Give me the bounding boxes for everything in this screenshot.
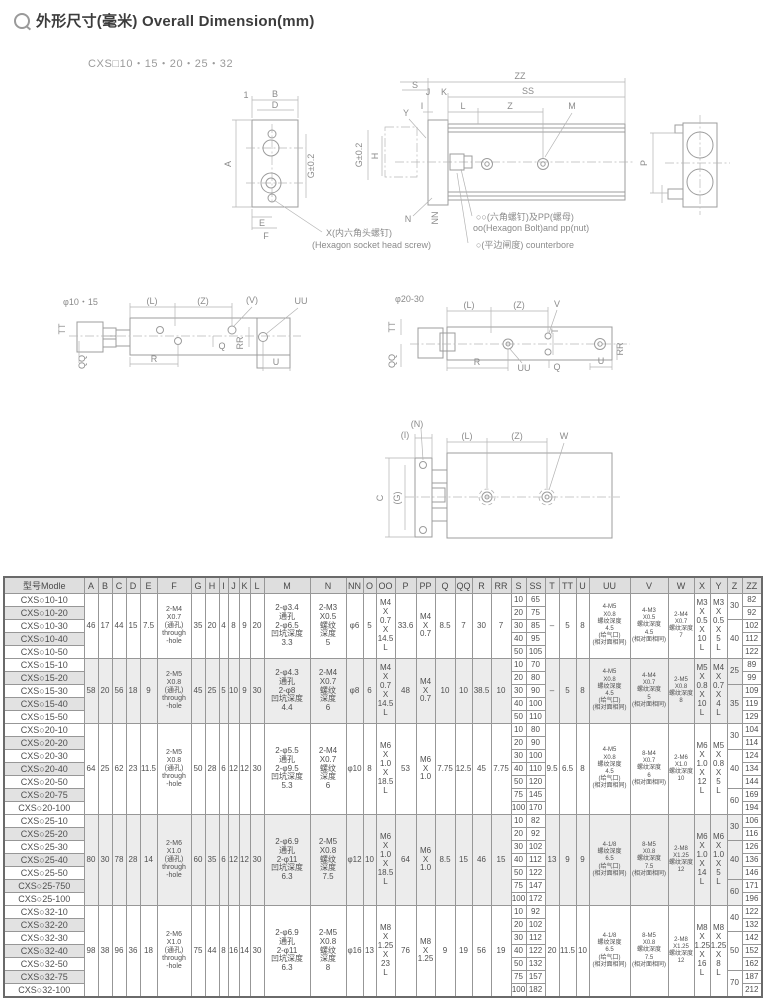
callout-bolt-nut-en: oo(Hexagon Bolt)and pp(nut) bbox=[473, 223, 589, 233]
table-cell: 2-φ6.9 通孔 2-φ11 凹坑深度 6.3 bbox=[264, 906, 310, 998]
table-cell: M8 X 1.25 X 23 L bbox=[376, 906, 395, 998]
model-cell: CXS○10-40 bbox=[4, 633, 84, 646]
table-cell: 112 bbox=[526, 854, 545, 867]
table-cell: 25 bbox=[205, 659, 219, 724]
table-cell: 92 bbox=[526, 828, 545, 841]
table-cell: 64 bbox=[84, 724, 98, 815]
table-cell: 90 bbox=[526, 737, 545, 750]
table-cell: M3 X 0.5 X 5 L bbox=[710, 594, 727, 659]
table-cell: 142 bbox=[742, 932, 762, 945]
model-cell: CXS○20-100 bbox=[4, 802, 84, 815]
table-cell: 40 bbox=[727, 906, 742, 932]
dimension-table: 型号ModleABCDEFGHIJKLMNNNOOOPPPQQQRRRSSSTT… bbox=[3, 576, 763, 998]
model-cell: CXS○20-50 bbox=[4, 776, 84, 789]
table-cell: 30 bbox=[727, 724, 742, 750]
column-header: NN bbox=[346, 577, 363, 594]
table-cell: M8 X 1.25 X 8 L bbox=[710, 906, 727, 998]
table-cell: 2-φ3.4 通孔 2-φ6.5 凹坑深度 3.3 bbox=[264, 594, 310, 659]
table-cell: 28 bbox=[126, 815, 140, 906]
table-cell: 12.5 bbox=[455, 724, 472, 815]
drawing-bottom-view: C (G) (I) (N) (L) (Z) W bbox=[365, 418, 625, 563]
table-cell: 2-M5 X0.8 (通孔) through -hole bbox=[157, 724, 191, 815]
table-cell: 40 bbox=[727, 841, 742, 880]
table-cell: 8 bbox=[576, 724, 589, 815]
table-cell: 30 bbox=[250, 815, 264, 906]
table-cell: 114 bbox=[742, 737, 762, 750]
dim-label-P: P bbox=[639, 160, 649, 166]
table-cell: 44 bbox=[112, 594, 126, 659]
table-cell: 147 bbox=[526, 880, 545, 893]
table-cell: 122 bbox=[742, 646, 762, 659]
model-cell: CXS○15-40 bbox=[4, 698, 84, 711]
table-cell: 99 bbox=[742, 672, 762, 685]
table-cell: 109 bbox=[742, 685, 762, 698]
table-cell: 8 bbox=[363, 724, 376, 815]
table-cell: 8-M4 X0.7 螺纹深度 6 (相对面相同) bbox=[630, 724, 668, 815]
dim-label-K: K bbox=[441, 87, 447, 97]
table-cell: 60 bbox=[191, 815, 205, 906]
table-cell: 10 bbox=[511, 815, 526, 828]
table-cell: 16 bbox=[228, 906, 239, 998]
table-cell: 7.75 bbox=[435, 724, 455, 815]
table-cell: 171 bbox=[742, 880, 762, 893]
table-cell: 20 bbox=[205, 594, 219, 659]
model-cell: CXS○32-50 bbox=[4, 958, 84, 971]
column-header: PP bbox=[416, 577, 435, 594]
dim-label-UU: UU bbox=[295, 296, 308, 306]
table-cell: 30 bbox=[472, 594, 491, 659]
table-cell: M3 X 0.5 X 10 L bbox=[694, 594, 710, 659]
table-cell: 78 bbox=[112, 815, 126, 906]
table-cell: 6 bbox=[363, 659, 376, 724]
model-cell: CXS○25-40 bbox=[4, 854, 84, 867]
table-cell: 4-1/8 螺纹深度 6.5 (给气口) (相对面相同) bbox=[589, 906, 630, 998]
column-header: N bbox=[310, 577, 346, 594]
table-cell: 2-M4 X0.7 螺纹 深度 6 bbox=[310, 659, 346, 724]
dim-label-RR: RR bbox=[615, 342, 625, 355]
table-cell: 38.5 bbox=[472, 659, 491, 724]
dim-label-QQ: QQ bbox=[77, 355, 87, 369]
table-cell: 50 bbox=[511, 958, 526, 971]
dim-label-L: (L) bbox=[462, 431, 473, 441]
table-cell: 196 bbox=[742, 893, 762, 906]
table-cell: 92 bbox=[742, 607, 762, 620]
view-title: φ20-30 bbox=[395, 294, 424, 304]
table-cell: 2-M6 X1.0 (通孔) through -hole bbox=[157, 906, 191, 998]
table-cell: 50 bbox=[727, 932, 742, 971]
table-cell: 75 bbox=[511, 789, 526, 802]
table-cell: 7.75 bbox=[491, 724, 511, 815]
table-cell: 132 bbox=[526, 958, 545, 971]
table-cell: 75 bbox=[511, 971, 526, 984]
table-cell: 12 bbox=[228, 815, 239, 906]
table-cell: 23 bbox=[126, 724, 140, 815]
table-cell: 30 bbox=[511, 841, 526, 854]
table-cell: 9 bbox=[140, 659, 157, 724]
table-cell: 90 bbox=[526, 685, 545, 698]
column-header: S bbox=[511, 577, 526, 594]
table-cell: 40 bbox=[727, 620, 742, 659]
column-header: R bbox=[472, 577, 491, 594]
table-cell: 4-M4 X0.7 螺纹深度 5 (相对面相同) bbox=[630, 659, 668, 724]
table-cell: 110 bbox=[526, 763, 545, 776]
table-cell: 40 bbox=[511, 854, 526, 867]
column-header: B bbox=[98, 577, 112, 594]
view-title: φ10・15 bbox=[63, 297, 98, 307]
table-cell: 30 bbox=[727, 594, 742, 620]
model-cell: CXS○25-50 bbox=[4, 867, 84, 880]
callout-bolt-nut-cn: ○○(六角螺钉)及PP(螺母) bbox=[476, 211, 574, 222]
table-cell: – bbox=[545, 659, 559, 724]
table-cell: 144 bbox=[742, 776, 762, 789]
table-cell: 2-φ5.5 通孔 2-φ9.5 凹坑深度 5.3 bbox=[264, 724, 310, 815]
table-cell: 162 bbox=[742, 958, 762, 971]
dim-label-V: V bbox=[554, 299, 560, 309]
dim-label-R: R bbox=[474, 357, 481, 367]
table-cell: 20 bbox=[98, 659, 112, 724]
table-cell: 9 bbox=[239, 594, 250, 659]
table-cell: 5 bbox=[219, 659, 228, 724]
table-cell: M5 X 0.8 X 10 L bbox=[694, 659, 710, 724]
model-cell: CXS○20-40 bbox=[4, 763, 84, 776]
dim-label-N: (N) bbox=[411, 419, 424, 429]
column-header: O bbox=[363, 577, 376, 594]
model-cell: CXS○15-30 bbox=[4, 685, 84, 698]
table-cell: 2-M8 X1.25 螺纹深度 12 bbox=[668, 906, 694, 998]
table-cell: 4-M5 X0.8 螺纹深度 4.5 (给气口) (相对面相同) bbox=[589, 724, 630, 815]
table-cell: 40 bbox=[511, 763, 526, 776]
table-cell: 2-M5 X0.8 螺纹 深度 7.5 bbox=[310, 815, 346, 906]
model-cell: CXS○32-10 bbox=[4, 906, 84, 919]
drawing-phi20-30: φ20-30 (L) (Z) V T TT QQ R UU Q U RR bbox=[385, 283, 720, 398]
column-header: OO bbox=[376, 577, 395, 594]
column-header: X bbox=[694, 577, 710, 594]
table-cell: 56 bbox=[472, 906, 491, 998]
table-cell: 53 bbox=[395, 724, 416, 815]
table-cell: 102 bbox=[742, 620, 762, 633]
table-cell: 96 bbox=[112, 906, 126, 998]
dim-label-RR: RR bbox=[235, 336, 245, 349]
model-cell: CXS○10-30 bbox=[4, 620, 84, 633]
table-cell: 30 bbox=[250, 659, 264, 724]
callout-hex-socket-en: (Hexagon socket head screw) bbox=[312, 240, 431, 250]
table-cell: 50 bbox=[511, 711, 526, 724]
callout-counterbore: ○(平边闸度) counterbore bbox=[476, 239, 574, 250]
dim-label-L: (L) bbox=[464, 300, 475, 310]
table-cell: 75 bbox=[511, 880, 526, 893]
dim-label-UU: UU bbox=[518, 363, 531, 373]
table-cell: 10 bbox=[511, 906, 526, 919]
dim-label-Y: Y bbox=[403, 108, 409, 118]
dim-label-Q: Q bbox=[553, 362, 560, 372]
table-cell: 65 bbox=[526, 594, 545, 607]
table-cell: 46 bbox=[472, 815, 491, 906]
table-cell: 38 bbox=[98, 906, 112, 998]
column-header: QQ bbox=[455, 577, 472, 594]
table-cell: 36 bbox=[126, 906, 140, 998]
model-cell: CXS○10-20 bbox=[4, 607, 84, 620]
table-cell: M6 X 1.0 X 18.5 L bbox=[376, 815, 395, 906]
table-cell: 50 bbox=[191, 724, 205, 815]
table-cell: 14 bbox=[140, 815, 157, 906]
dim-label-1: 1 bbox=[243, 90, 248, 100]
table-cell: 100 bbox=[511, 984, 526, 998]
table-cell: 82 bbox=[526, 815, 545, 828]
table-cell: 12 bbox=[228, 724, 239, 815]
table-cell: M6 X 1.0 bbox=[416, 724, 435, 815]
table-cell: 70 bbox=[526, 659, 545, 672]
dim-label-TT: TT bbox=[57, 323, 67, 334]
model-cell: CXS○15-10 bbox=[4, 659, 84, 672]
table-cell: 172 bbox=[526, 893, 545, 906]
model-cell: CXS○32-30 bbox=[4, 932, 84, 945]
dim-label-S: S bbox=[412, 80, 418, 90]
dim-label-U: U bbox=[598, 356, 605, 366]
table-cell: 187 bbox=[742, 971, 762, 984]
table-cell: 64 bbox=[395, 815, 416, 906]
table-cell: 106 bbox=[742, 815, 762, 828]
table-cell: 124 bbox=[742, 750, 762, 763]
column-header: W bbox=[668, 577, 694, 594]
dim-label-G: G±0.2 bbox=[306, 154, 316, 178]
column-header: UU bbox=[589, 577, 630, 594]
table-cell: 30 bbox=[511, 932, 526, 945]
dim-label-C: C bbox=[375, 494, 385, 501]
table-cell: φ10 bbox=[346, 724, 363, 815]
table-cell: 8 bbox=[219, 906, 228, 998]
table-cell: 10 bbox=[435, 659, 455, 724]
table-cell: 4-M5 X0.8 螺纹深度 4.5 (给气口) (相对面相同) bbox=[589, 594, 630, 659]
table-cell: 10 bbox=[363, 815, 376, 906]
table-cell: 129 bbox=[742, 711, 762, 724]
column-header: F bbox=[157, 577, 191, 594]
table-cell: 8-M5 X0.8 螺纹深度 7.5 (相对面相同) bbox=[630, 815, 668, 906]
table-cell: M8 X 1.25 bbox=[416, 906, 435, 998]
dim-label-QQ: QQ bbox=[387, 354, 397, 368]
table-cell: 9 bbox=[559, 815, 576, 906]
table-cell: M5 X 0.8 X 5 L bbox=[710, 724, 727, 815]
table-cell: 89 bbox=[742, 659, 762, 672]
table-cell: 2-M5 X0.8 螺纹 深度 8 bbox=[310, 906, 346, 998]
dim-label-A: A bbox=[223, 161, 233, 167]
table-cell: 116 bbox=[742, 828, 762, 841]
dim-label-B: B bbox=[272, 89, 278, 99]
model-cell: CXS○25-10 bbox=[4, 815, 84, 828]
dim-label-H: H bbox=[370, 153, 380, 160]
table-cell: 120 bbox=[526, 776, 545, 789]
table-cell: 40 bbox=[511, 698, 526, 711]
table-cell: M6 X 1.0 bbox=[416, 815, 435, 906]
table-cell: 136 bbox=[742, 854, 762, 867]
column-header: Z bbox=[727, 577, 742, 594]
table-cell: 19 bbox=[491, 906, 511, 998]
dim-label-Z: Z bbox=[507, 101, 513, 111]
column-header: M bbox=[264, 577, 310, 594]
table-cell: 70 bbox=[727, 971, 742, 998]
model-cell: CXS○10-50 bbox=[4, 646, 84, 659]
drawing-phi10-15: φ10・15 (L) (Z) (V) UU TT QQ Q RR R U bbox=[55, 283, 395, 398]
table-cell: 4 bbox=[219, 594, 228, 659]
table-cell: 80 bbox=[526, 672, 545, 685]
table-cell: 17 bbox=[98, 594, 112, 659]
table-cell: 20 bbox=[511, 919, 526, 932]
dim-label-M: M bbox=[568, 101, 576, 111]
table-cell: 212 bbox=[742, 984, 762, 998]
column-header: C bbox=[112, 577, 126, 594]
dim-label-N: N bbox=[405, 214, 412, 224]
table-cell: 102 bbox=[526, 841, 545, 854]
table-cell: M4 X 0.7 bbox=[416, 594, 435, 659]
table-cell: 2-M6 X1.0 螺纹深度 10 bbox=[668, 724, 694, 815]
table-cell: 25 bbox=[98, 724, 112, 815]
column-header: ZZ bbox=[742, 577, 762, 594]
callout-hex-socket-cn: X(内六角头螺钉) bbox=[326, 227, 392, 238]
table-cell: 9 bbox=[576, 815, 589, 906]
table-cell: 92 bbox=[526, 906, 545, 919]
table-cell: 6 bbox=[219, 815, 228, 906]
table-cell: φ8 bbox=[346, 659, 363, 724]
model-cell: CXS○25-750 bbox=[4, 880, 84, 893]
table-cell: 14 bbox=[239, 906, 250, 998]
table-cell: 12 bbox=[239, 724, 250, 815]
table-cell: 100 bbox=[526, 698, 545, 711]
dim-label-Z: (Z) bbox=[511, 431, 523, 441]
table-cell: 2-M4 X0.7 (通孔) through -hole bbox=[157, 594, 191, 659]
table-cell: 58 bbox=[84, 659, 98, 724]
column-header: E bbox=[140, 577, 157, 594]
table-cell: 40 bbox=[727, 750, 742, 789]
dim-label-F: F bbox=[263, 231, 269, 241]
table-cell: M6 X 1.0 X 14 L bbox=[694, 815, 710, 906]
table-cell: 5 bbox=[559, 594, 576, 659]
table-cell: 35 bbox=[727, 685, 742, 724]
model-cell: CXS○32-100 bbox=[4, 984, 84, 998]
table-cell: 8-M5 X0.8 螺纹深度 7.5 (相对面相同) bbox=[630, 906, 668, 998]
table-cell: 30 bbox=[250, 724, 264, 815]
table-cell: 157 bbox=[526, 971, 545, 984]
table-cell: φ6 bbox=[346, 594, 363, 659]
table-cell: 5 bbox=[559, 659, 576, 724]
table-cell: 18 bbox=[140, 906, 157, 998]
column-header: 型号Modle bbox=[4, 577, 84, 594]
table-cell: 104 bbox=[742, 724, 762, 737]
table-cell: 6.5 bbox=[559, 724, 576, 815]
table-cell: 76 bbox=[395, 906, 416, 998]
table-cell: 8 bbox=[576, 659, 589, 724]
table-cell: 25 bbox=[727, 659, 742, 685]
dim-label-R: R bbox=[151, 354, 158, 364]
table-cell: 5 bbox=[363, 594, 376, 659]
table-cell: 60 bbox=[727, 880, 742, 906]
table-cell: 2-φ4.3 通孔 2-φ8 凹坑深度 4.4 bbox=[264, 659, 310, 724]
table-cell: 45 bbox=[191, 659, 205, 724]
table-cell: 110 bbox=[526, 711, 545, 724]
table-cell: 7 bbox=[455, 594, 472, 659]
table-cell: 2-M5 X0.8 (通孔) through -hole bbox=[157, 659, 191, 724]
page-title: 外形尺寸(毫米) Overall Dimension(mm) bbox=[36, 10, 315, 31]
drawing-top-views: B D 1 A G±0.2 E F X(内六角头螺钉) (Hexagon soc… bbox=[210, 70, 765, 275]
table-cell: M6 X 1.0 X 12 L bbox=[694, 724, 710, 815]
model-cell: CXS○25-100 bbox=[4, 893, 84, 906]
table-cell: 170 bbox=[526, 802, 545, 815]
column-header: Y bbox=[710, 577, 727, 594]
model-cell: CXS○10-10 bbox=[4, 594, 84, 607]
table-cell: 33.6 bbox=[395, 594, 416, 659]
table-cell: M4 X 0.7 X 4 L bbox=[710, 659, 727, 724]
table-cell: 2-M8 X1.25 螺纹深度 12 bbox=[668, 815, 694, 906]
column-header: U bbox=[576, 577, 589, 594]
table-cell: – bbox=[545, 594, 559, 659]
dim-label-J: J bbox=[426, 87, 431, 97]
table-cell: 105 bbox=[526, 646, 545, 659]
table-cell: 126 bbox=[742, 841, 762, 854]
table-cell: 75 bbox=[191, 906, 205, 998]
model-cell: CXS○20-30 bbox=[4, 750, 84, 763]
column-header: H bbox=[205, 577, 219, 594]
table-cell: 98 bbox=[84, 906, 98, 998]
table-cell: 82 bbox=[742, 594, 762, 607]
table-cell: 15 bbox=[455, 815, 472, 906]
table-cell: 132 bbox=[742, 919, 762, 932]
table-cell: 28 bbox=[205, 724, 219, 815]
dim-label-NN: NN bbox=[430, 212, 440, 225]
table-cell: 122 bbox=[526, 945, 545, 958]
model-cell: CXS○32-75 bbox=[4, 971, 84, 984]
model-cell: CXS○15-50 bbox=[4, 711, 84, 724]
table-cell: 30 bbox=[727, 815, 742, 841]
table-cell: M8 X 1.25 X 16 L bbox=[694, 906, 710, 998]
table-cell: 11.5 bbox=[140, 724, 157, 815]
table-cell: 2-M3 X0.5 螺纹 深度 5 bbox=[310, 594, 346, 659]
table-cell: M4 X 0.7 X 14.5 L bbox=[376, 659, 395, 724]
dim-label-E: E bbox=[259, 218, 265, 228]
table-cell: 40 bbox=[511, 633, 526, 646]
table-cell: 30 bbox=[250, 906, 264, 998]
table-cell: 48 bbox=[395, 659, 416, 724]
column-header: L bbox=[250, 577, 264, 594]
series-subtitle: CXS□10・15・20・25・32 bbox=[88, 55, 233, 71]
table-cell: 35 bbox=[191, 594, 205, 659]
column-header: A bbox=[84, 577, 98, 594]
table-cell: 119 bbox=[742, 698, 762, 711]
table-cell: 30 bbox=[98, 815, 112, 906]
dim-label-Q: Q bbox=[218, 341, 225, 351]
table-cell: 134 bbox=[742, 763, 762, 776]
table-cell: 20 bbox=[511, 737, 526, 750]
table-cell: 112 bbox=[526, 932, 545, 945]
dim-label-I: (I) bbox=[401, 430, 410, 440]
table-cell: M4 X 0.7 X 14.5 L bbox=[376, 594, 395, 659]
table-cell: 100 bbox=[526, 750, 545, 763]
table-cell: 4-M5 X0.8 螺纹深度 4.5 (给气口) (相对面相同) bbox=[589, 659, 630, 724]
dim-label-ZZ: ZZ bbox=[515, 71, 526, 81]
table-cell: 194 bbox=[742, 802, 762, 815]
model-cell: CXS○15-20 bbox=[4, 672, 84, 685]
table-cell: 9 bbox=[239, 659, 250, 724]
table-cell: 182 bbox=[526, 984, 545, 998]
table-cell: 95 bbox=[526, 633, 545, 646]
table-cell: 12 bbox=[239, 815, 250, 906]
table-cell: 11.5 bbox=[559, 906, 576, 998]
table-cell: 60 bbox=[727, 789, 742, 815]
table-cell: 44 bbox=[205, 906, 219, 998]
page-header: 外形尺寸(毫米) Overall Dimension(mm) bbox=[14, 10, 315, 31]
table-cell: 50 bbox=[511, 646, 526, 659]
table-cell: 10 bbox=[511, 724, 526, 737]
column-header: D bbox=[126, 577, 140, 594]
column-header: Q bbox=[435, 577, 455, 594]
column-header: I bbox=[219, 577, 228, 594]
